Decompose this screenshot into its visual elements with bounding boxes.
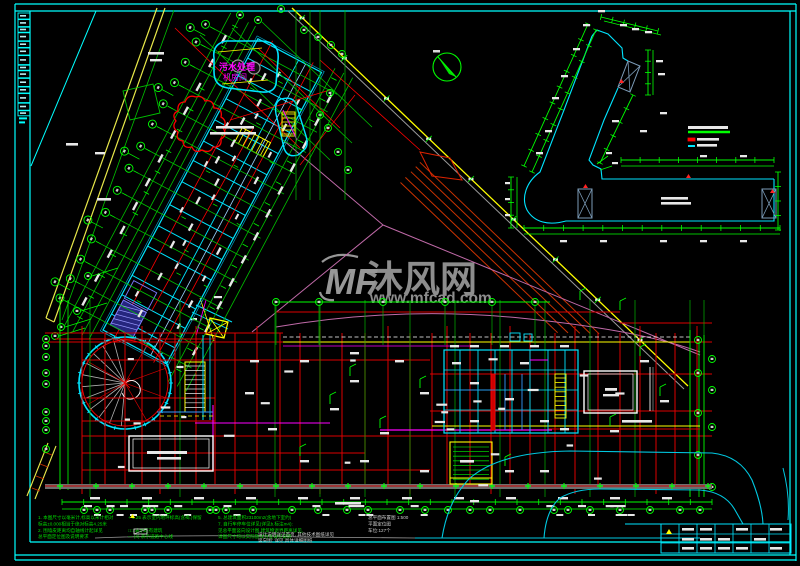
svg-text:平面定位图: 平面定位图: [368, 520, 391, 527]
svg-text:www.mfcad.com: www.mfcad.com: [369, 290, 492, 307]
svg-text:设计说明详见首页, 其他技术图纸详见: 设计说明详见首页, 其他技术图纸详见: [258, 531, 334, 538]
svg-text:7. 自行车停车位详见(详见b.标注m4):: 7. 自行车停车位详见(详见b.标注m4):: [218, 520, 293, 527]
svg-text:车位:127个: 车位:127个: [368, 527, 391, 534]
svg-text:2. 围墙皮距离均自轴线计起详见: 2. 围墙皮距离均自轴线计起详见: [38, 527, 103, 534]
svg-text:机房间: 机房间: [223, 72, 247, 82]
svg-text:5. 总建筑面积23100m2(含地下室约): 5. 总建筑面积23100m2(含地下室约): [218, 514, 292, 521]
svg-text:竖向图: 详见,具体详细图纸: 竖向图: 详见,具体详细图纸: [258, 537, 313, 544]
svg-text:□□ 表示既有建筑: □□ 表示既有建筑: [128, 527, 163, 534]
svg-text:污水处理: 污水处理: [219, 61, 255, 72]
svg-text:总平面布置图 1:500: 总平面布置图 1:500: [368, 514, 409, 521]
svg-text:+ 4.25 表示室内地坪标高(含褐.)保留: + 4.25 表示室内地坪标高(含褐.)保留: [128, 514, 202, 521]
svg-text:标高±0.000相当于绝对标高4.25米: 标高±0.000相当于绝对标高4.25米: [38, 520, 107, 527]
svg-text:1. 本图尺寸以毫米计,标高以米计相对: 1. 本图尺寸以毫米计,标高以米计相对: [38, 514, 114, 521]
svg-text:总平面定位图及说明要求: 总平面定位图及说明要求: [38, 533, 89, 540]
